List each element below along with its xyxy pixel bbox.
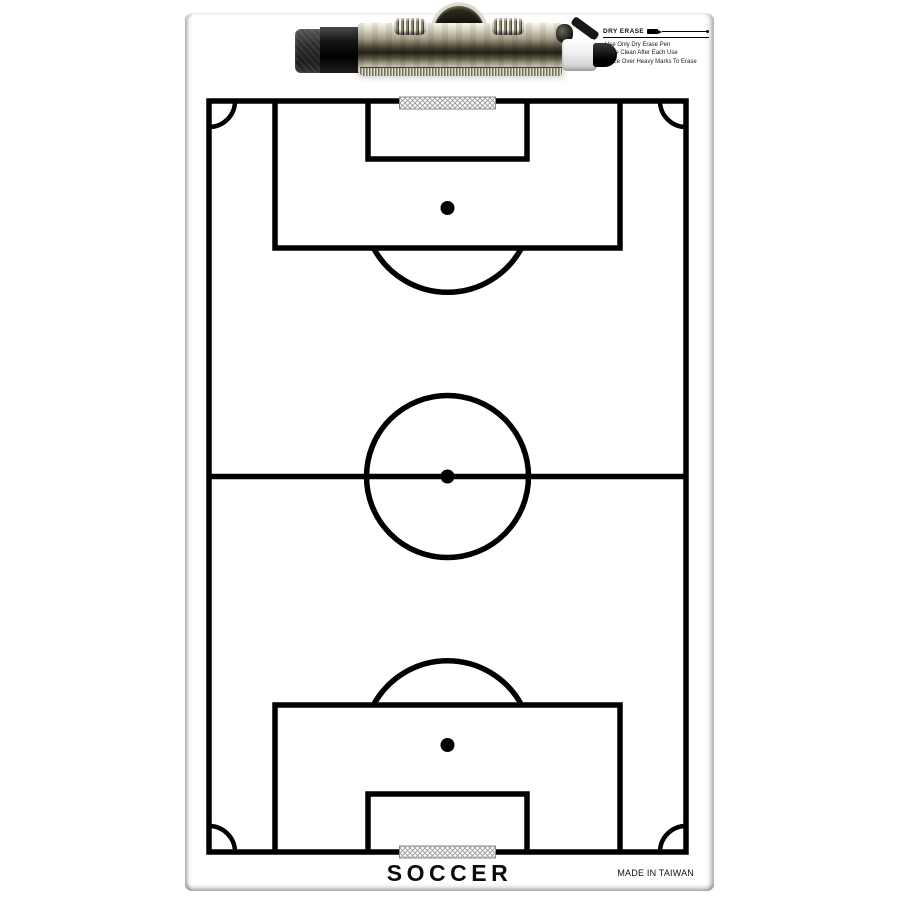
goal-net-top bbox=[400, 97, 496, 109]
product-photo-canvas: DRY ERASE ·Use Only Dry Erase Pen ·Wipe … bbox=[0, 0, 900, 900]
marker-cap-collar bbox=[562, 39, 597, 71]
corner-arc-top-left bbox=[209, 101, 235, 127]
origin-label: MADE IN TAIWAN bbox=[617, 868, 694, 878]
penalty-spot-top bbox=[441, 201, 455, 215]
marker-cap-tip bbox=[593, 43, 617, 67]
penalty-area-bottom bbox=[275, 705, 620, 852]
marker-pocket-clip bbox=[570, 16, 600, 41]
clipboard-board: DRY ERASE ·Use Only Dry Erase Pen ·Wipe … bbox=[185, 13, 714, 891]
marker-eraser-cap bbox=[295, 29, 322, 73]
soccer-field-diagram bbox=[185, 13, 714, 891]
clip-spring-left bbox=[394, 18, 426, 35]
clip-serrated-edge bbox=[360, 67, 562, 76]
goal-net-bottom bbox=[400, 846, 496, 858]
penalty-area-top bbox=[275, 101, 620, 248]
corner-arc-top-right bbox=[660, 101, 686, 127]
goal-area-bottom bbox=[368, 794, 527, 852]
corner-arc-bottom-left bbox=[209, 826, 235, 852]
penalty-spot-bottom bbox=[441, 738, 455, 752]
penalty-arc-bottom bbox=[374, 661, 522, 705]
penalty-arc-top bbox=[374, 248, 522, 292]
center-spot bbox=[441, 470, 455, 484]
goal-area-top bbox=[368, 101, 527, 159]
clip-spring-right bbox=[492, 18, 524, 35]
clip-and-marker bbox=[0, 0, 900, 95]
corner-arc-bottom-right bbox=[660, 826, 686, 852]
